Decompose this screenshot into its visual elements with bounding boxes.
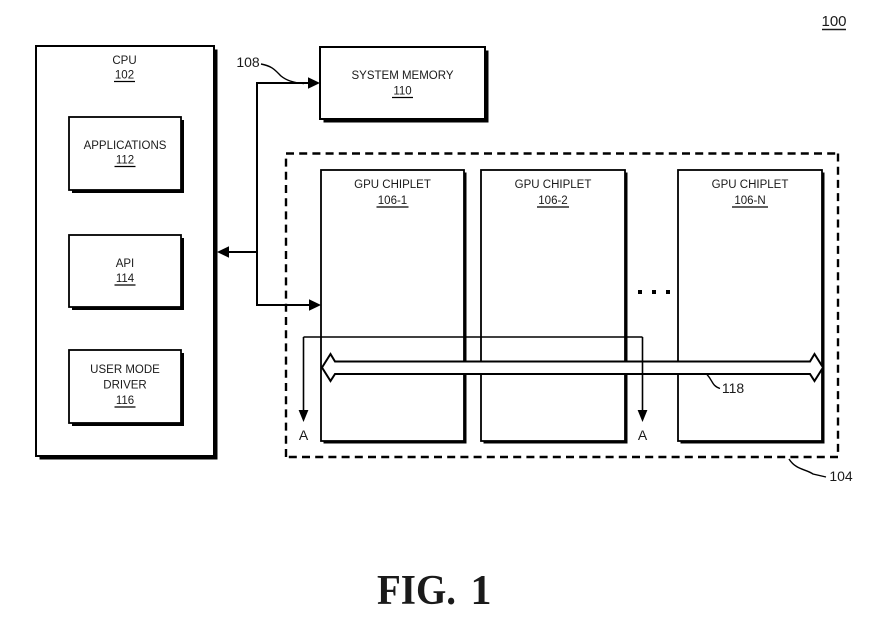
svg-text:SYSTEM MEMORY: SYSTEM MEMORY bbox=[351, 70, 453, 82]
svg-text:106-2: 106-2 bbox=[538, 195, 567, 207]
svg-text:108: 108 bbox=[236, 54, 260, 70]
svg-text:FIG.: FIG. bbox=[377, 568, 456, 614]
svg-text:DRIVER: DRIVER bbox=[103, 380, 146, 392]
svg-text:112: 112 bbox=[116, 155, 134, 167]
svg-text:102: 102 bbox=[115, 70, 134, 82]
svg-text:GPU CHIPLET: GPU CHIPLET bbox=[354, 179, 431, 191]
svg-text:APPLICATIONS: APPLICATIONS bbox=[84, 140, 167, 152]
svg-text:100: 100 bbox=[821, 13, 846, 30]
svg-text:114: 114 bbox=[116, 273, 135, 285]
svg-text:106-N: 106-N bbox=[734, 195, 765, 207]
svg-text:A: A bbox=[299, 427, 309, 443]
svg-text:118: 118 bbox=[722, 380, 745, 396]
svg-text:116: 116 bbox=[116, 395, 134, 407]
svg-text:API: API bbox=[116, 258, 135, 270]
svg-text:A: A bbox=[638, 427, 648, 443]
svg-text:106-1: 106-1 bbox=[378, 195, 407, 207]
svg-text:104: 104 bbox=[829, 468, 853, 484]
svg-text:1: 1 bbox=[471, 568, 492, 614]
svg-text:USER MODE: USER MODE bbox=[90, 364, 160, 376]
svg-text:CPU: CPU bbox=[112, 55, 136, 67]
svg-text:GPU CHIPLET: GPU CHIPLET bbox=[712, 179, 789, 191]
svg-text:GPU CHIPLET: GPU CHIPLET bbox=[515, 179, 592, 191]
svg-text:110: 110 bbox=[393, 86, 411, 98]
